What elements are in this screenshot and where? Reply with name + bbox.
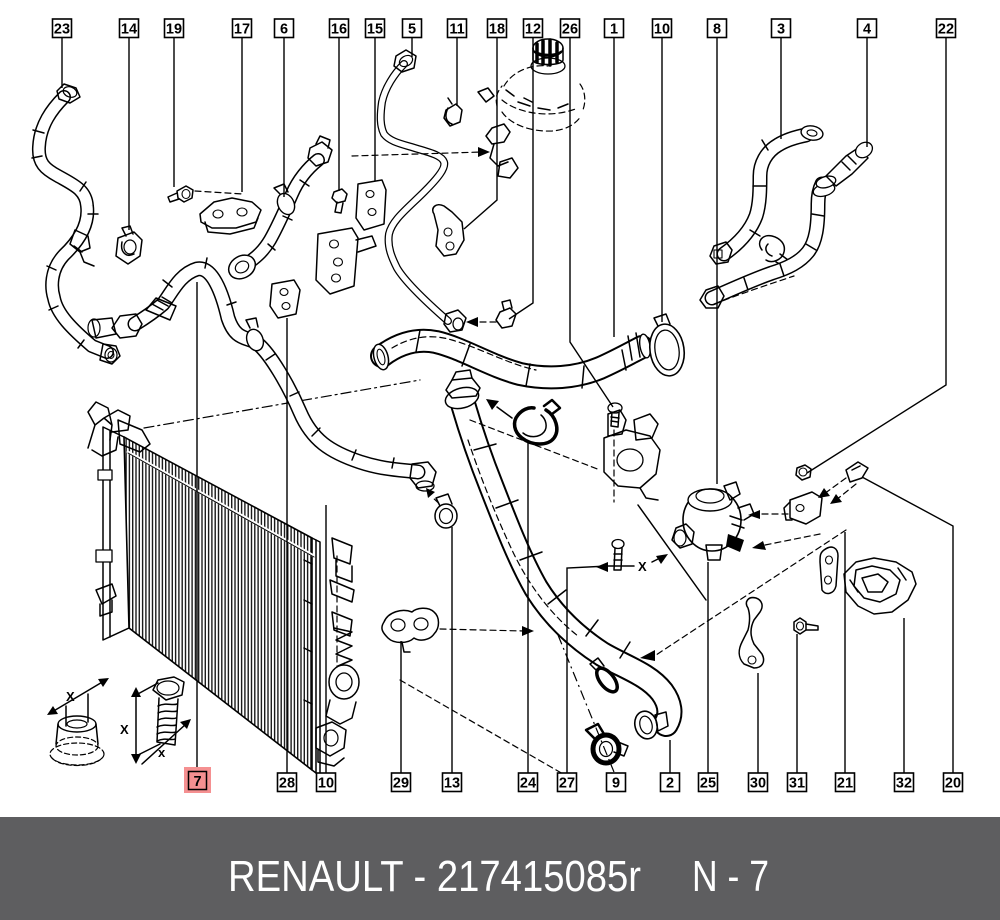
svg-text:9: 9	[612, 776, 620, 792]
svg-text:10: 10	[654, 22, 670, 38]
svg-text:23: 23	[54, 22, 70, 38]
svg-text:2: 2	[666, 776, 674, 792]
svg-text:X: X	[66, 689, 75, 704]
svg-text:21: 21	[837, 776, 853, 792]
svg-text:32: 32	[896, 776, 912, 792]
svg-text:4: 4	[863, 22, 871, 38]
svg-text:28: 28	[279, 776, 295, 792]
svg-text:X: X	[638, 559, 647, 574]
svg-text:1: 1	[610, 22, 618, 38]
svg-text:20: 20	[945, 776, 961, 792]
svg-text:5: 5	[408, 22, 416, 38]
svg-text:15: 15	[367, 22, 383, 38]
svg-text:19: 19	[166, 22, 182, 38]
svg-text:N - 7: N - 7	[692, 852, 769, 901]
svg-text:24: 24	[520, 776, 536, 792]
svg-text:12: 12	[525, 22, 541, 38]
svg-text:14: 14	[121, 22, 137, 38]
svg-text:7: 7	[193, 774, 201, 790]
svg-text:3: 3	[777, 22, 785, 38]
svg-text:RENAULT - 217415085r: RENAULT - 217415085r	[228, 852, 641, 901]
svg-text:13: 13	[444, 776, 460, 792]
svg-text:X: X	[120, 722, 129, 737]
svg-text:22: 22	[938, 22, 954, 38]
svg-text:8: 8	[713, 22, 721, 38]
svg-text:27: 27	[559, 776, 575, 792]
svg-text:25: 25	[700, 776, 716, 792]
svg-text:10: 10	[318, 776, 334, 792]
svg-text:11: 11	[449, 22, 464, 38]
svg-text:17: 17	[234, 22, 250, 38]
svg-text:x: x	[158, 745, 166, 760]
svg-text:26: 26	[562, 22, 578, 38]
svg-text:31: 31	[789, 776, 805, 792]
svg-text:18: 18	[489, 22, 505, 38]
svg-text:30: 30	[750, 776, 766, 792]
svg-text:16: 16	[331, 22, 347, 38]
svg-text:29: 29	[393, 776, 409, 792]
svg-text:6: 6	[280, 22, 288, 38]
